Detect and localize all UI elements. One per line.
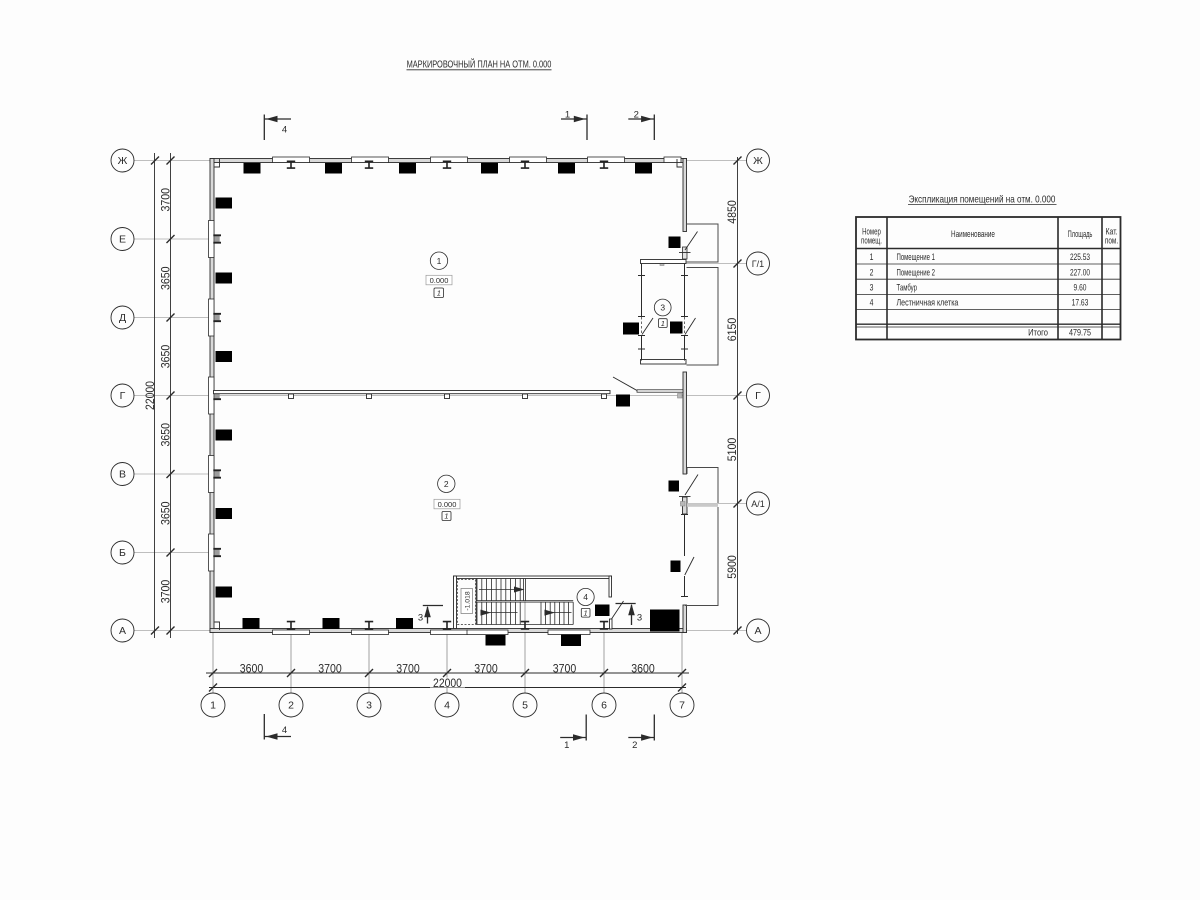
svg-text:4: 4 [870, 298, 874, 308]
svg-text:Наименование: Наименование [951, 229, 995, 240]
svg-text:Площадь: Площадь [1068, 229, 1093, 240]
svg-text:1: 1 [210, 700, 216, 712]
svg-text:-1.018: -1.018 [464, 591, 471, 610]
svg-text:3: 3 [637, 613, 642, 624]
svg-text:Б: Б [119, 547, 126, 559]
svg-text:Г/1: Г/1 [752, 259, 764, 269]
svg-text:1: 1 [444, 512, 448, 521]
svg-text:3650: 3650 [160, 267, 173, 290]
svg-text:Д: Д [119, 312, 126, 324]
svg-text:Е: Е [119, 234, 126, 246]
svg-text:А: А [119, 625, 126, 637]
svg-text:5900: 5900 [726, 555, 739, 578]
svg-text:3700: 3700 [160, 580, 173, 603]
svg-text:0.000: 0.000 [438, 500, 457, 509]
svg-text:6: 6 [601, 700, 607, 712]
svg-text:4: 4 [583, 592, 588, 602]
svg-text:Помещение 1: Помещение 1 [897, 252, 936, 263]
svg-text:1: 1 [564, 740, 569, 751]
svg-text:Экспликация помещений на отм.: Экспликация помещений на отм. 0.000 [909, 193, 1056, 204]
svg-text:3700: 3700 [553, 663, 576, 676]
svg-text:2: 2 [288, 700, 294, 712]
svg-text:5: 5 [522, 700, 528, 712]
svg-text:6150: 6150 [726, 318, 739, 341]
svg-text:Ж: Ж [118, 155, 128, 167]
svg-text:7: 7 [679, 700, 685, 712]
svg-text:4: 4 [282, 125, 287, 136]
svg-text:3650: 3650 [160, 502, 173, 525]
svg-text:МАРКИРОВОЧНЫЙ ПЛАН НА ОТМ. 0.0: МАРКИРОВОЧНЫЙ ПЛАН НА ОТМ. 0.000 [407, 57, 552, 69]
svg-text:4850: 4850 [726, 200, 739, 223]
svg-text:3: 3 [418, 613, 423, 624]
svg-text:3700: 3700 [160, 188, 173, 211]
svg-text:пом.: пом. [1105, 235, 1118, 246]
svg-text:1: 1 [584, 609, 588, 618]
svg-text:3700: 3700 [396, 663, 419, 676]
svg-text:помещ.: помещ. [861, 235, 882, 246]
svg-text:Тамбур: Тамбур [897, 282, 918, 293]
svg-text:Ж: Ж [753, 155, 763, 167]
svg-text:225.53: 225.53 [1070, 252, 1090, 262]
svg-text:0.000: 0.000 [430, 276, 449, 285]
svg-text:4: 4 [444, 700, 450, 712]
svg-text:Г: Г [120, 390, 126, 402]
svg-text:1: 1 [437, 256, 442, 266]
svg-text:22000: 22000 [144, 381, 157, 410]
svg-text:1: 1 [870, 252, 874, 262]
svg-text:3600: 3600 [240, 663, 263, 676]
svg-text:3: 3 [870, 282, 874, 292]
svg-text:А/1: А/1 [751, 499, 765, 509]
svg-text:4: 4 [282, 725, 287, 736]
svg-text:3700: 3700 [318, 663, 341, 676]
svg-text:А: А [754, 625, 761, 637]
svg-text:3: 3 [366, 700, 372, 712]
svg-text:3650: 3650 [160, 423, 173, 446]
svg-text:2: 2 [870, 267, 874, 277]
svg-text:1: 1 [661, 319, 665, 328]
svg-text:2: 2 [444, 479, 449, 489]
svg-text:В: В [119, 469, 126, 481]
svg-text:Помещение 2: Помещение 2 [897, 267, 936, 278]
svg-text:5100: 5100 [726, 438, 739, 461]
svg-text:3: 3 [660, 303, 665, 313]
svg-text:3650: 3650 [160, 345, 173, 368]
svg-text:1: 1 [565, 110, 570, 121]
svg-text:17.63: 17.63 [1072, 298, 1089, 308]
svg-text:22000: 22000 [433, 677, 462, 690]
svg-text:479.75: 479.75 [1069, 326, 1091, 337]
svg-text:3700: 3700 [474, 663, 497, 676]
svg-text:227.00: 227.00 [1070, 267, 1090, 277]
svg-text:2: 2 [634, 110, 639, 121]
svg-text:1: 1 [437, 288, 441, 297]
svg-text:2: 2 [632, 740, 637, 751]
svg-text:Г: Г [755, 390, 761, 402]
svg-text:Лестничная клетка: Лестничная клетка [897, 297, 959, 308]
svg-text:3600: 3600 [631, 663, 654, 676]
svg-text:Итого: Итого [1028, 326, 1048, 337]
svg-text:9.60: 9.60 [1074, 282, 1087, 292]
